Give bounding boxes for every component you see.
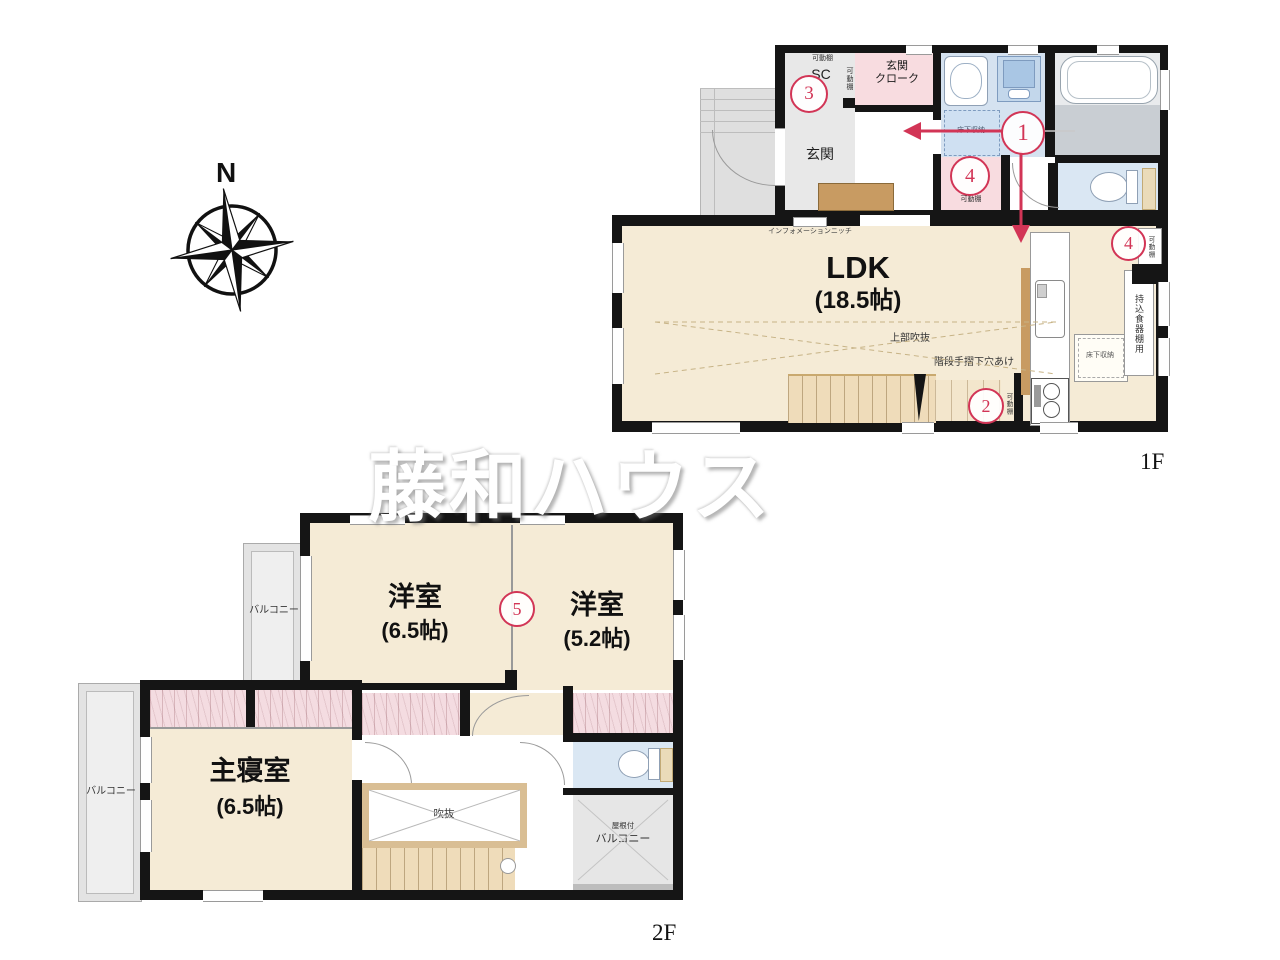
sc-shelf-label: 可動棚 <box>795 55 850 63</box>
window <box>140 800 152 852</box>
cupboard-space-label: 持込食器棚用 <box>1132 278 1144 370</box>
window <box>906 45 932 55</box>
cloak-label: 玄関 クローク <box>857 60 937 85</box>
floor2-tag: 2F <box>652 920 676 946</box>
watermark: 藤和ハウス <box>368 425 773 537</box>
cloak-label-line1: 玄関 <box>886 60 908 72</box>
void-label: 吹抜 <box>408 808 480 820</box>
washing-machine-drum <box>1003 60 1035 88</box>
shinshitsu-closet-divider <box>246 690 255 727</box>
stove-grill <box>1034 385 1041 407</box>
marker-3-number: 3 <box>804 83 814 105</box>
porch-line <box>714 88 715 216</box>
stairs-2f-handrail <box>500 858 516 874</box>
marker-1-number: 1 <box>1017 120 1029 146</box>
roofed-balcony-edge <box>573 884 673 890</box>
floor-plan-page: N 可動棚 SC 可動棚 玄関 <box>0 0 1280 960</box>
stairs-2f <box>362 848 515 890</box>
shinshitsu-name: 主寝室 <box>184 756 316 787</box>
floor2-plan: 洋室 (6.5帖) 洋室 (5.2帖) バルコニー 主寝室 (6.5帖) <box>0 500 1280 960</box>
toilet2-top-wall <box>563 733 683 742</box>
window <box>902 422 934 434</box>
marker-4a-number: 4 <box>965 165 975 188</box>
genkan-label: 玄関 <box>793 146 847 162</box>
marker-4b: 4 <box>1111 226 1146 261</box>
porch-steps <box>700 88 776 134</box>
window <box>673 615 685 660</box>
washbasin-bowl <box>950 63 982 99</box>
toilet1-tank <box>1126 170 1138 204</box>
yoshitsu-a-name: 洋室 <box>368 582 462 613</box>
front-door-gap <box>775 128 785 186</box>
yoshitsu-b-closet <box>573 693 673 738</box>
yoshitsu-a-size: (6.5帖) <box>355 618 475 643</box>
marker-5-number: 5 <box>513 599 522 620</box>
ldk-hall-opening <box>860 215 930 226</box>
bath-toilet-wall <box>1055 155 1168 163</box>
window <box>1097 45 1119 55</box>
stairs-1f <box>788 374 936 423</box>
closet-a-right-wall <box>460 686 470 736</box>
ldk-size: (18.5帖) <box>768 287 948 315</box>
sc-shelf-label-vert: 可動棚 <box>843 60 853 98</box>
shinshitsu-right-wall <box>352 680 362 900</box>
upper-void-label: 上部吹抜 <box>878 333 942 345</box>
stove-burner-1 <box>1043 383 1060 400</box>
info-niche-label: インフォメーションニッチ <box>760 228 860 236</box>
stove-burner-2 <box>1043 401 1060 418</box>
toilet1-counter <box>1142 168 1156 210</box>
yoshitsu-b-name: 洋室 <box>550 590 644 621</box>
marker-2: 2 <box>968 388 1004 424</box>
floor1-tag: 1F <box>1140 449 1164 475</box>
roofed-balcony-label-top: 屋根付 <box>598 822 648 831</box>
balcony-upper-label: バルコニー <box>241 605 307 617</box>
yoshitsu-b-size: (5.2帖) <box>537 626 657 651</box>
balcony-upper-left-inner <box>251 551 294 684</box>
shinshitsu-size: (6.5帖) <box>190 794 310 819</box>
marker-5: 5 <box>499 591 535 627</box>
marker-1: 1 <box>1001 111 1045 155</box>
hall-closet-shelf-label: 可動棚 <box>944 196 998 204</box>
marker-3: 3 <box>790 75 828 113</box>
window <box>203 890 263 902</box>
toilet2-bowl-icon <box>618 750 650 778</box>
toilet1-bowl-icon <box>1090 172 1128 202</box>
yoshitsu-a-closet <box>362 693 460 735</box>
kitchen-wall-strip <box>1021 268 1030 395</box>
marker-2-number: 2 <box>982 396 991 417</box>
marker-4a: 4 <box>950 156 990 196</box>
roofed-balcony-label: バルコニー <box>586 833 660 846</box>
cloak-bottom-wall <box>855 105 938 112</box>
window <box>612 243 624 293</box>
underfloor-storage-2-label: 床下収納 <box>1074 352 1126 360</box>
shoe-cabinet <box>818 183 894 211</box>
bathtub-inner <box>1067 61 1151 99</box>
kitchen-faucet <box>1037 284 1047 298</box>
balcony-lower-label: バルコニー <box>74 786 148 798</box>
underfloor-storage-1-label: 床下収納 <box>946 127 996 135</box>
toilet2-counter <box>660 748 673 782</box>
ldk-name: LDK <box>788 250 928 286</box>
window <box>140 737 152 783</box>
toilet2-bottom-wall <box>563 788 683 795</box>
kitchen-shelf-wall <box>1132 264 1164 284</box>
window <box>1008 45 1038 55</box>
washroom-bath-wall <box>1045 53 1055 157</box>
bath-floor <box>1055 105 1160 157</box>
window <box>673 550 685 600</box>
toilet2-tank <box>648 748 660 780</box>
cloak-label-line2: クローク <box>875 73 919 85</box>
marker-4b-number: 4 <box>1124 233 1133 254</box>
window <box>1040 422 1078 434</box>
window <box>1158 338 1170 376</box>
info-niche-box <box>793 217 827 227</box>
window <box>612 328 624 384</box>
window <box>1158 282 1170 326</box>
shinshitsu-door-gap <box>352 740 362 780</box>
hall-closet-right-wall <box>1001 155 1010 218</box>
window <box>1160 70 1170 110</box>
shinshitsu-top-wall <box>140 680 362 690</box>
washing-machine-lid <box>1008 89 1030 99</box>
washroom-door-gap <box>933 120 941 154</box>
